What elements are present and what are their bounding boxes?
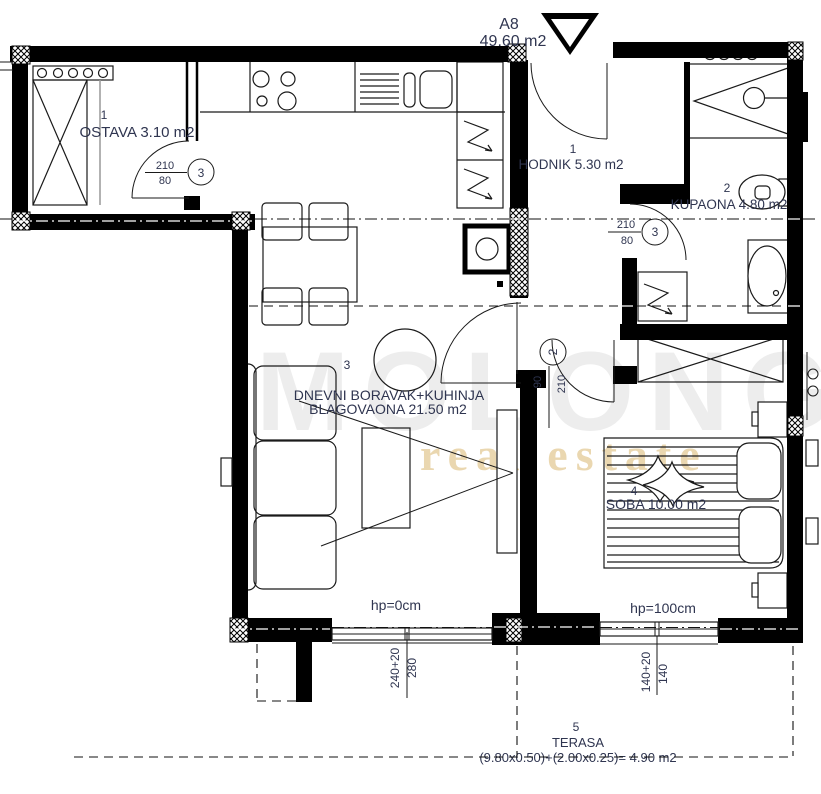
wall-niche [684,62,690,186]
nightstand [758,573,787,608]
room-number-kupaona: 2 [724,181,731,195]
window-dim-living-2: 280 [405,658,419,678]
wall-soba-jamb [613,366,637,384]
floor-plan-drawing: MOLONGO real estate [0,0,821,794]
door-width: 80 [159,175,171,187]
room-number-dnevni: 3 [344,358,351,372]
wall-living-soba [520,376,537,632]
floor-plan-page: MOLONGO real estate [0,0,821,794]
wall-top-left [10,46,508,62]
wall-soba-north [620,324,803,340]
room-number-terasa: 5 [573,720,580,734]
window-dim-bedroom-1: 140+20 [639,651,653,692]
wall-top-right [613,42,803,58]
wall-bath-left [622,258,637,328]
wall-bottom-right [718,618,803,643]
pillow [737,443,781,499]
nightstand-knob [752,583,758,597]
wall-entry [510,60,528,208]
parapet-label-bedroom: hp=100cm [630,600,696,616]
unit-label: A8 [499,16,519,33]
room-name-ostava: OSTAVA 3.10 m2 [79,124,194,141]
parapet-label-living: hp=0cm [371,597,421,613]
nightstand-knob [752,412,758,426]
room-name-soba: SOBA 10.00 m2 [606,496,707,512]
window-dim-living-1: 240+20 [388,647,402,688]
door-height: 210 [617,219,635,231]
door-height: 210 [556,375,568,393]
washbasin-icon [748,240,790,313]
pillow [739,507,781,563]
door-height: 210 [156,160,174,172]
wall-living-left [232,214,248,632]
door-mark: 3 [198,166,205,180]
nightstand [758,402,787,437]
wall-right [787,42,803,643]
wall-margin-piece [803,92,808,142]
room-name-dnevni-line2: BLAGOVAONA 21.50 m2 [309,401,467,417]
wall-ostava-bottom [12,214,255,230]
washing-machine-icon [638,272,687,321]
wall-ostava-left [12,46,28,230]
window-dim-bedroom-2: 140 [656,664,670,684]
wall-terrace-stub [296,640,312,702]
door-width: 90 [532,376,544,388]
room-name-hodnik: HODNIK 5.30 m2 [518,157,623,172]
room-number-ostava: 1 [101,108,108,122]
room-name-kupaona: KUPAONA 4.80 m2 [671,197,788,212]
room-name-terasa: TERASA [552,735,604,750]
door-mark: 3 [652,225,659,239]
door-mark: 2 [546,348,560,355]
room-number-hodnik: 1 [570,142,577,156]
door-width: 80 [621,235,633,247]
unit-area: 49.60 m2 [480,33,547,50]
